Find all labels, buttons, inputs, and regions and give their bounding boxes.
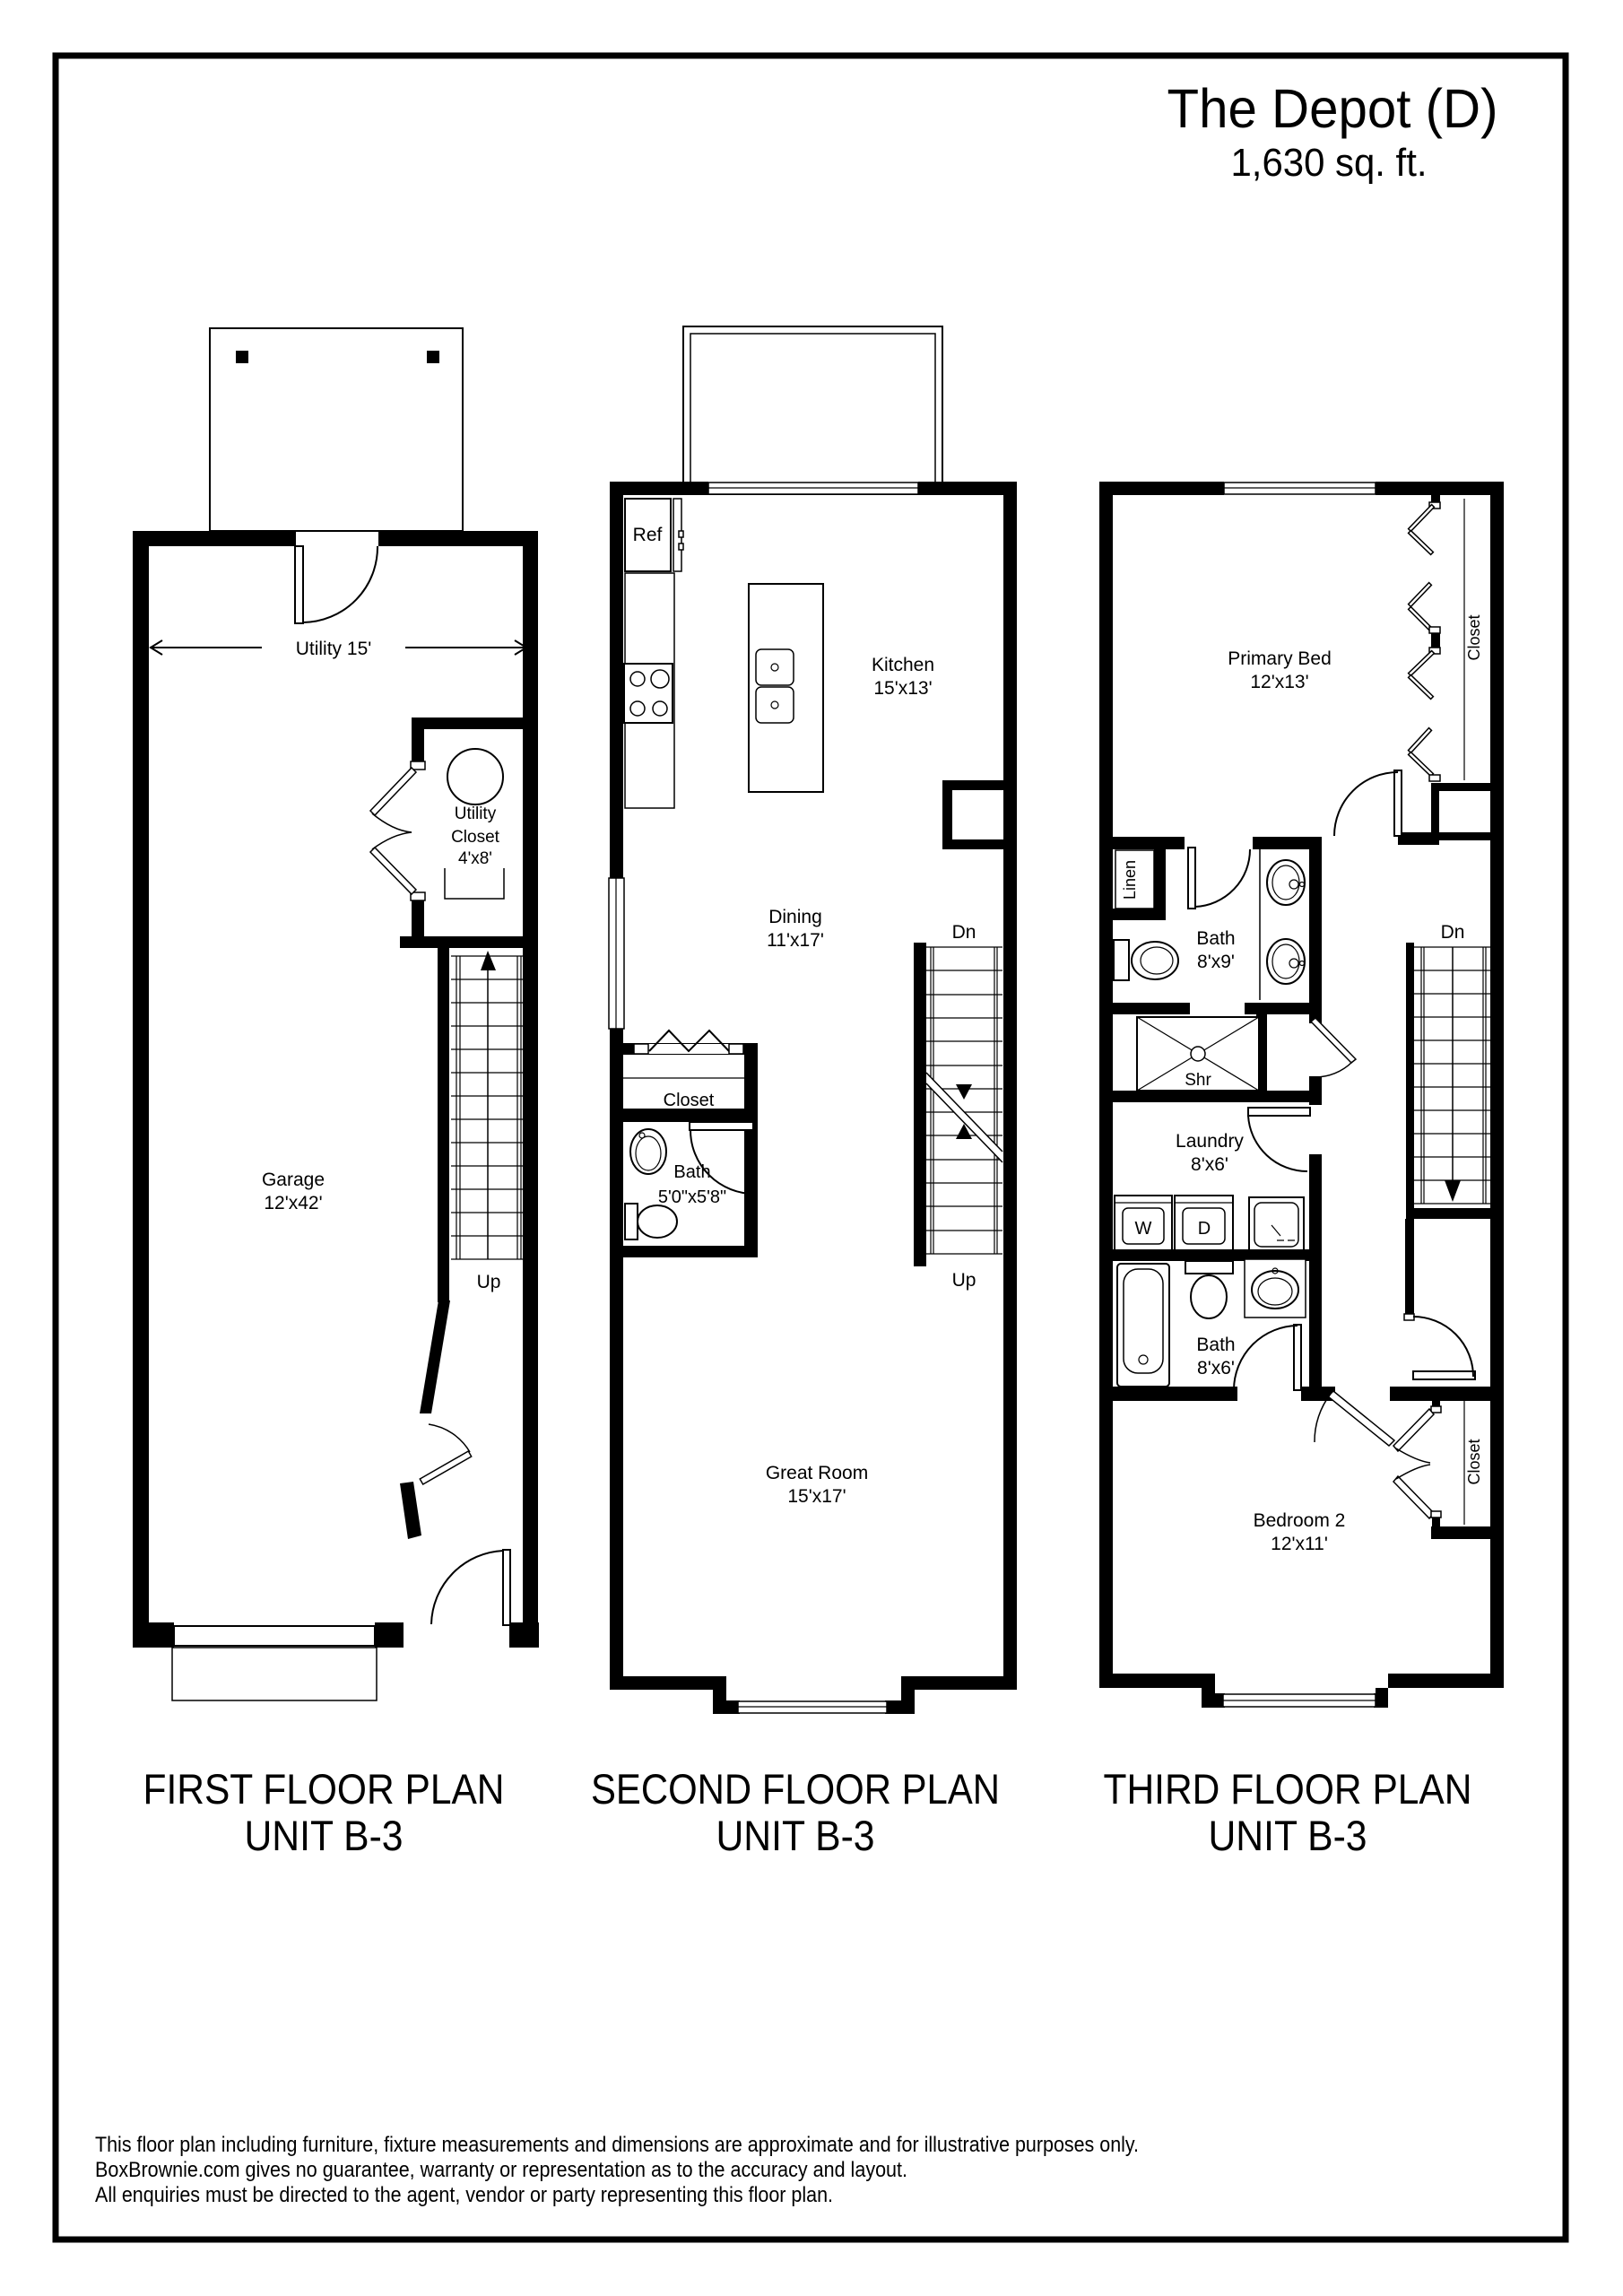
svg-text:Utility 15': Utility 15' (296, 639, 372, 659)
svg-text:Up: Up (952, 1270, 976, 1291)
svg-text:Utility: Utility (455, 804, 497, 823)
svg-text:1,630 sq. ft.: 1,630 sq. ft. (1231, 141, 1428, 185)
svg-text:Closet: Closet (1465, 1439, 1483, 1484)
svg-text:8'x6': 8'x6' (1191, 1154, 1228, 1175)
svg-text:Laundry: Laundry (1176, 1131, 1244, 1152)
svg-text:Closet: Closet (451, 828, 500, 847)
svg-text:D: D (1198, 1219, 1211, 1239)
svg-text:Closet: Closet (664, 1091, 715, 1110)
svg-text:8'x6': 8'x6' (1197, 1358, 1235, 1378)
svg-text:UNIT B-3: UNIT B-3 (716, 1812, 875, 1859)
svg-text:Closet: Closet (1465, 614, 1483, 660)
svg-text:This floor plan including furn: This floor plan including furniture, fix… (95, 2133, 1139, 2157)
svg-text:11'x17': 11'x17' (767, 930, 824, 951)
svg-text:Dn: Dn (1441, 922, 1465, 943)
svg-text:Garage: Garage (262, 1170, 325, 1190)
svg-text:12'x13': 12'x13' (1250, 672, 1308, 692)
svg-text:Dn: Dn (952, 922, 976, 943)
svg-text:FIRST FLOOR PLAN: FIRST FLOOR PLAN (143, 1765, 505, 1813)
svg-text:All enquiries must be directed: All enquiries must be directed to the ag… (95, 2183, 833, 2207)
svg-text:Ref: Ref (633, 525, 663, 545)
svg-text:Primary Bed: Primary Bed (1228, 648, 1332, 669)
svg-text:5'0"x5'8": 5'0"x5'8" (658, 1187, 726, 1207)
svg-text:SECOND FLOOR PLAN: SECOND FLOOR PLAN (591, 1765, 1000, 1813)
svg-text:4'x8': 4'x8' (458, 849, 492, 868)
svg-text:8'x9': 8'x9' (1197, 952, 1235, 972)
svg-text:Bedroom 2: Bedroom 2 (1254, 1510, 1346, 1531)
svg-text:15'x13': 15'x13' (873, 678, 932, 699)
svg-text:BoxBrownie.com gives no guaran: BoxBrownie.com gives no guarantee, warra… (95, 2158, 907, 2182)
svg-text:15'x17': 15'x17' (787, 1486, 846, 1507)
svg-text:Linen: Linen (1121, 860, 1139, 900)
svg-text:Shr: Shr (1185, 1071, 1211, 1090)
svg-text:Dining: Dining (768, 907, 822, 927)
svg-text:Bath: Bath (1196, 1335, 1235, 1355)
svg-text:12'x42': 12'x42' (264, 1193, 322, 1213)
svg-text:Great Room: Great Room (766, 1463, 868, 1483)
svg-text:Bath: Bath (673, 1162, 710, 1182)
svg-text:Up: Up (477, 1272, 501, 1292)
svg-text:Bath: Bath (1196, 928, 1235, 949)
svg-text:The Depot (D): The Depot (D) (1167, 78, 1498, 139)
svg-text:W: W (1135, 1219, 1152, 1239)
svg-text:UNIT B-3: UNIT B-3 (245, 1812, 404, 1859)
svg-text:Kitchen: Kitchen (872, 655, 934, 675)
svg-text:12'x11': 12'x11' (1271, 1534, 1328, 1554)
svg-text:UNIT B-3: UNIT B-3 (1209, 1812, 1367, 1859)
svg-text:THIRD FLOOR PLAN: THIRD FLOOR PLAN (1104, 1765, 1472, 1813)
